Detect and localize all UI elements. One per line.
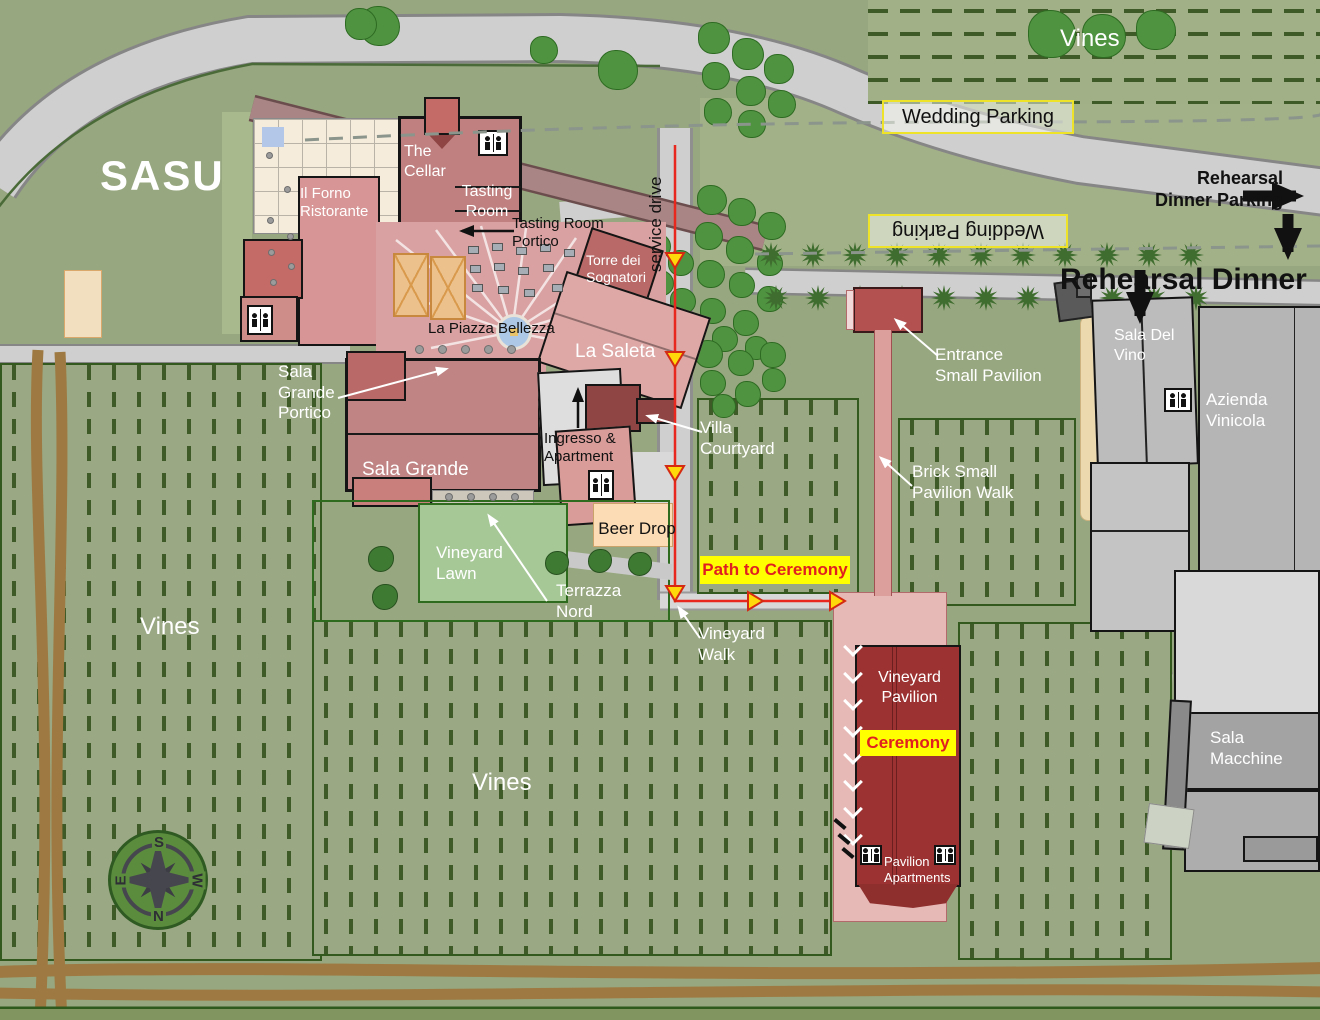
tree-icon xyxy=(668,250,694,276)
label-vineyard-lawn: Vineyard Lawn xyxy=(436,543,516,584)
table-icon xyxy=(498,286,509,294)
label-vineyard-pavilion: Vineyard Pavilion xyxy=(872,668,947,707)
pool-tile xyxy=(262,127,284,147)
restroom-icon xyxy=(860,845,882,865)
small-pavilion-step xyxy=(846,290,854,330)
label-wedding-parking-flipped: Wedding Parking xyxy=(868,214,1068,248)
roof-il-forno xyxy=(243,239,303,299)
label-sala-macchine: Sala Macchine xyxy=(1210,728,1295,769)
label-il-forno: Il Forno Ristorante xyxy=(300,185,390,222)
brick-pavilion-walk xyxy=(874,330,892,596)
label-rehearsal-dinner-parking: RehearsalDinner Parking xyxy=(1108,168,1283,212)
tree-icon xyxy=(738,110,766,138)
plaza-dot xyxy=(484,345,493,354)
tan-lot xyxy=(64,270,102,338)
tree-icon xyxy=(702,62,730,90)
vine-field-south xyxy=(312,620,832,956)
patio-dot xyxy=(284,186,291,193)
tree-icon xyxy=(728,350,754,376)
building-sala-del-vino xyxy=(1091,296,1199,467)
tree-icon xyxy=(931,285,957,311)
tree-icon xyxy=(735,381,761,407)
table-icon xyxy=(470,265,481,273)
tree-icon xyxy=(768,90,796,118)
label-sasu: SASU xyxy=(100,150,225,201)
table-icon xyxy=(468,246,479,254)
plaza-dot xyxy=(507,345,516,354)
label-azienda-vinicola: Azienda Vinicola xyxy=(1206,390,1296,431)
label-wedding-parking: Wedding Parking xyxy=(882,100,1074,134)
label-ceremony: Ceremony xyxy=(860,730,956,756)
building-villa-courtyard xyxy=(585,384,641,432)
patio-dot xyxy=(288,263,295,270)
tree-icon xyxy=(805,285,831,311)
label-piazza: La Piazza Bellezza xyxy=(428,320,598,338)
tree-icon xyxy=(732,38,764,70)
tree-icon xyxy=(695,222,723,250)
tree-icon xyxy=(726,236,754,264)
tree-icon xyxy=(698,22,730,54)
macchine-annex xyxy=(1243,836,1318,862)
label-la-saleta: La Saleta xyxy=(575,340,655,363)
label-villa-courtyard: Villa Courtyard xyxy=(700,418,785,459)
patio-dot xyxy=(287,233,294,240)
compass-top: S xyxy=(152,834,166,851)
light-patch xyxy=(1143,803,1194,849)
terrace-dot xyxy=(511,493,519,501)
compass-left: E xyxy=(113,873,130,887)
tree-icon xyxy=(728,198,756,226)
tree-icon xyxy=(973,285,999,311)
tree-icon xyxy=(598,50,638,90)
tree-icon xyxy=(733,310,759,336)
roof-cellar-tower xyxy=(424,97,460,135)
building-azienda-vinicola xyxy=(1198,306,1320,598)
label-terrazza-nord: Terrazza Nord xyxy=(556,581,641,622)
tree-icon xyxy=(697,260,725,288)
pergola xyxy=(393,253,429,317)
label-entrance-small-pavilion: Entrance Small Pavilion xyxy=(935,345,1050,386)
label-pavilion-apartments: Pavilion Apartments xyxy=(884,854,956,886)
table-icon xyxy=(492,243,503,251)
tree-icon xyxy=(729,272,755,298)
table-icon xyxy=(518,267,529,275)
wing-villa-courtyard xyxy=(636,398,676,424)
plaza-dot xyxy=(415,345,424,354)
tree-icon xyxy=(758,212,786,240)
plaza-dot xyxy=(438,345,447,354)
restroom-icon xyxy=(247,305,273,335)
building-warehouse-roof xyxy=(1174,570,1320,718)
label-vines-top: Vines xyxy=(1060,24,1120,53)
label-sala-grande-portico: Sala Grande Portico xyxy=(278,362,344,424)
patio-dot xyxy=(268,249,275,256)
site-map: S N E W xyxy=(0,0,1320,1020)
tree-icon xyxy=(700,370,726,396)
label-brick-walk: Brick Small Pavilion Walk xyxy=(912,462,1024,503)
tree-icon xyxy=(760,342,786,368)
building-small-pavilion xyxy=(853,287,923,333)
tree-icon xyxy=(704,98,732,126)
table-icon xyxy=(543,264,554,272)
tree-icon xyxy=(1015,285,1041,311)
tree-icon xyxy=(345,8,377,40)
label-path-to-ceremony: Path to Ceremony xyxy=(700,556,850,584)
pergola xyxy=(430,256,466,320)
label-sala-grande: Sala Grande xyxy=(362,458,469,481)
label-service-drive: service drive xyxy=(646,112,667,272)
table-icon xyxy=(472,284,483,292)
terrace-dot xyxy=(489,493,497,501)
tree-icon xyxy=(1136,10,1176,50)
compass-right: W xyxy=(189,871,206,889)
label-beer-drop: Beer Drop xyxy=(597,519,677,540)
tree-icon xyxy=(712,394,736,418)
table-icon xyxy=(494,263,505,271)
tree-icon xyxy=(697,185,727,215)
label-sala-del-vino: Sala Del Vino xyxy=(1114,326,1182,365)
tree-icon xyxy=(762,368,786,392)
tree-icon xyxy=(736,76,766,106)
vine-field-east-lower xyxy=(958,622,1172,960)
label-the-cellar: The Cellar xyxy=(404,142,459,181)
tree-icon xyxy=(764,54,794,84)
patio-dot xyxy=(266,152,273,159)
bottom-strip xyxy=(0,1009,1320,1020)
plaza-dot xyxy=(461,345,470,354)
terrace-dot xyxy=(445,493,453,501)
patio-dot xyxy=(270,279,277,286)
label-vines-bottom: Vines xyxy=(472,768,532,797)
restroom-icon xyxy=(588,470,614,500)
restroom-icon xyxy=(1164,388,1192,412)
terrace-dot xyxy=(467,493,475,501)
label-tasting-room-portico: Tasting Room Portico xyxy=(512,215,622,252)
compass-bottom: N xyxy=(151,908,166,925)
label-rehearsal-dinner: Rehearsal Dinner xyxy=(1060,262,1307,299)
label-vineyard-walk: Vineyard Walk xyxy=(698,624,773,665)
table-icon xyxy=(552,284,563,292)
label-vines-left: Vines xyxy=(140,612,200,641)
label-ingresso: Ingresso & Apartment xyxy=(544,430,639,467)
roof-sala-grande-portico xyxy=(346,351,406,401)
patio-dot xyxy=(267,217,274,224)
restroom-icon xyxy=(478,130,508,156)
tree-icon xyxy=(530,36,558,64)
compass-rose-icon: S N E W xyxy=(108,830,208,930)
label-torre: Torre dei Sognatori xyxy=(586,252,664,286)
vine-field-east-upper xyxy=(898,418,1076,606)
table-icon xyxy=(524,289,535,297)
